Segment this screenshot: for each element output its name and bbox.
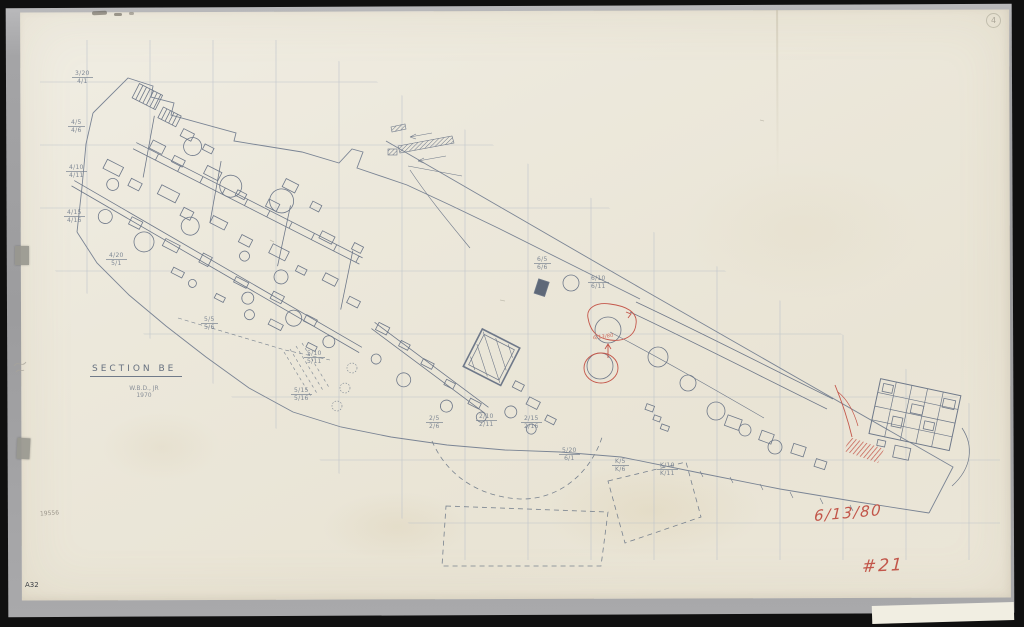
catalog-number: 19556 [40,509,60,517]
grid-coordinate-label: 4/154/16 [64,209,85,224]
red-sheet-number: #21 [862,555,905,577]
grid-coordinate-label: 2/52/6 [426,415,443,430]
grid-coordinate-label: 5/206/1 [559,447,580,462]
credit-year: 1970 [136,392,151,399]
section-title: SECTION BE [90,364,182,377]
grid-coordinate-label: 2/102/11 [476,413,497,428]
credit-name: W.B.D., JR [129,385,158,392]
grid-coordinate-label: 5/105/11 [304,350,325,365]
grid-coordinate-label: 3/204/1 [72,70,93,85]
grid-coordinate-label: 5/55/6 [201,316,218,331]
hatched-square-structure [463,329,519,385]
corner-mark: 4 [986,13,1001,28]
credit-line: W.B.D., JR 1970 [122,385,166,399]
site-plan-drawing [0,0,1024,627]
grid-coordinate-label: 2/152/16 [521,415,542,430]
red-markup [584,304,884,463]
grid-coordinate-label: 4/54/6 [68,119,85,134]
dashed-excavation-limits [178,318,701,566]
grid-coordinate-label: 6/106/11 [588,275,609,290]
scan-background: 3/204/1 4/54/6 4/104/11 4/154/16 4/205/1… [0,0,1024,627]
structures-right [534,275,969,511]
grid-coordinate-label: 6/56/6 [534,256,551,271]
grid-coordinate-label: K/5K/6 [612,458,629,473]
trench-outline [77,78,953,513]
wall-rectangles [73,102,533,429]
hatched-strips [388,124,470,248]
sheet-code: A32 [25,581,39,589]
grid-coordinate-label: 4/205/1 [106,252,127,267]
stairs [129,84,185,127]
grid-coordinate-label: 5/155/16 [291,387,312,402]
grid-coordinate-label: 4/104/11 [66,164,87,179]
grid-coordinate-label: K/10K/11 [657,462,678,477]
